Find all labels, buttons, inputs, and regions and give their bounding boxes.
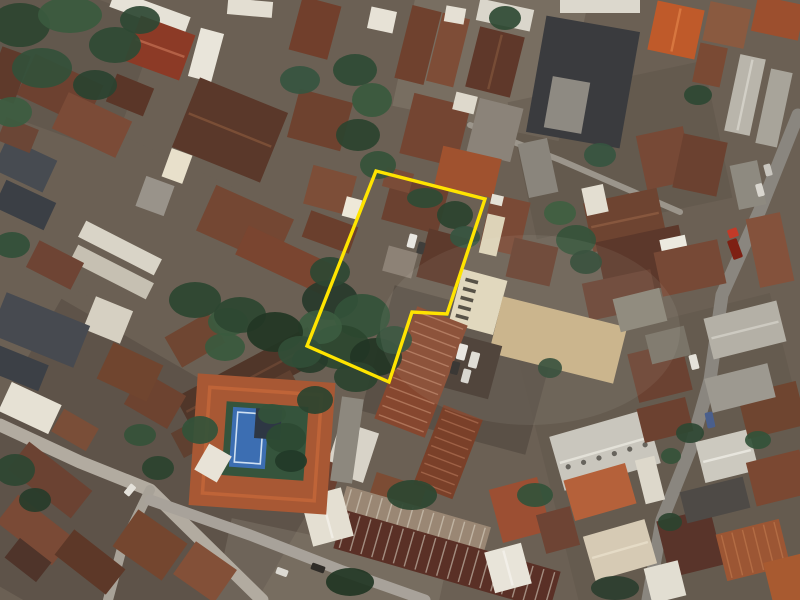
tree-canopy <box>275 450 307 472</box>
building-roof <box>702 1 751 49</box>
tree-canopy <box>73 70 117 100</box>
building-roof <box>444 5 466 24</box>
building <box>702 1 751 49</box>
tree-canopy <box>591 576 639 600</box>
atmosphere-layer <box>380 235 680 425</box>
tree-canopy <box>326 568 374 596</box>
tree-canopy <box>584 143 616 167</box>
building <box>560 0 640 13</box>
tree-canopy <box>661 448 681 464</box>
tree-canopy <box>658 513 682 531</box>
tree-canopy <box>310 257 350 287</box>
tree-canopy <box>266 423 306 453</box>
tree-canopy <box>407 188 443 208</box>
tree-canopy <box>333 54 377 86</box>
satellite-map-image <box>0 0 800 600</box>
tree-canopy <box>517 483 553 507</box>
tree-canopy <box>182 416 218 444</box>
tree-canopy <box>278 336 322 368</box>
tree-canopy <box>544 201 576 225</box>
tree-canopy <box>676 423 704 443</box>
tree-canopy <box>19 488 51 512</box>
tree-canopy <box>387 480 437 510</box>
tree-canopy <box>489 6 521 30</box>
building <box>444 5 466 24</box>
tree-canopy <box>297 386 333 414</box>
tree-canopy <box>124 424 156 446</box>
building <box>647 1 704 60</box>
satellite-map-canvas <box>0 0 800 600</box>
tree-canopy <box>437 201 473 229</box>
tree-canopy <box>745 431 771 449</box>
sun-haze <box>380 235 680 425</box>
tree-canopy <box>205 333 245 361</box>
building-roof <box>560 0 640 13</box>
tree-canopy <box>120 6 160 34</box>
tree-canopy <box>352 83 392 117</box>
tree-canopy <box>684 85 712 105</box>
tree-canopy <box>280 66 320 94</box>
tree-canopy <box>142 456 174 480</box>
tree-canopy <box>258 404 286 424</box>
tree-canopy <box>12 48 72 88</box>
tree-canopy <box>336 119 380 151</box>
